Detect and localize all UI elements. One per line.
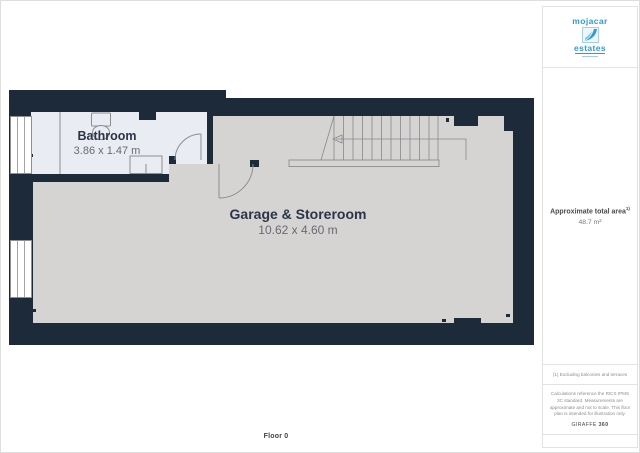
- wall-mark: [32, 309, 36, 312]
- floor-label: Floor 0: [241, 433, 311, 440]
- agency-logo: mojacar estates: [543, 7, 637, 67]
- garage-dimensions: 10.62 x 4.60 m: [258, 223, 337, 237]
- total-area-value: 48.7 m²: [578, 219, 601, 226]
- floorplan-page: Bathroom 3.86 x 1.47 m Garage & Storeroo…: [0, 0, 640, 453]
- total-area-label: Approximate total area1): [550, 206, 630, 215]
- giraffe360-brand-suffix: 360: [599, 422, 609, 428]
- giraffe360-brand-name: GIRAFFE: [572, 422, 597, 428]
- bathroom-dimensions: 3.86 x 1.47 m: [74, 145, 141, 157]
- footnote-panel: (1) Excluding balconies and terraces: [543, 364, 637, 384]
- total-area-label-text: Approximate total area: [550, 208, 626, 215]
- total-area-footnote-ref: 1): [626, 206, 630, 211]
- sidebar-spacer: [543, 434, 637, 447]
- bathroom-label: Bathroom: [77, 129, 136, 143]
- wall-mark: [506, 314, 510, 317]
- logo-underline: [575, 53, 605, 54]
- disclaimer-panel: Calculations reference the RICS IPMS 3C …: [543, 384, 637, 434]
- sink-vanity-icon: [130, 156, 162, 174]
- wall-stub: [139, 112, 156, 120]
- agency-logo-icon: [582, 27, 599, 43]
- wall-mark: [446, 118, 449, 122]
- wall-stub: [250, 160, 259, 167]
- disclaimer-text: Calculations reference the RICS IPMS 3C …: [548, 391, 632, 418]
- window-icon: [11, 241, 32, 298]
- logo-subline: [582, 56, 598, 58]
- giraffe360-brand: GIRAFFE 360: [572, 422, 609, 428]
- floor-plan-svg: Bathroom 3.86 x 1.47 m Garage & Storeroo…: [1, 1, 546, 453]
- logo-text-bottom: estates: [574, 44, 606, 53]
- sidebar: mojacar estates Approximate total area1)…: [542, 6, 638, 448]
- stair-landing: [289, 160, 439, 167]
- footnote-text: (1) Excluding balconies and terraces: [553, 372, 627, 377]
- window-icon: [11, 117, 32, 174]
- logo-text-top: mojacar: [572, 17, 607, 26]
- total-area-panel: Approximate total area1) 48.7 m²: [543, 67, 637, 364]
- garage-label: Garage & Storeroom: [230, 206, 367, 222]
- wall-mark: [442, 319, 446, 322]
